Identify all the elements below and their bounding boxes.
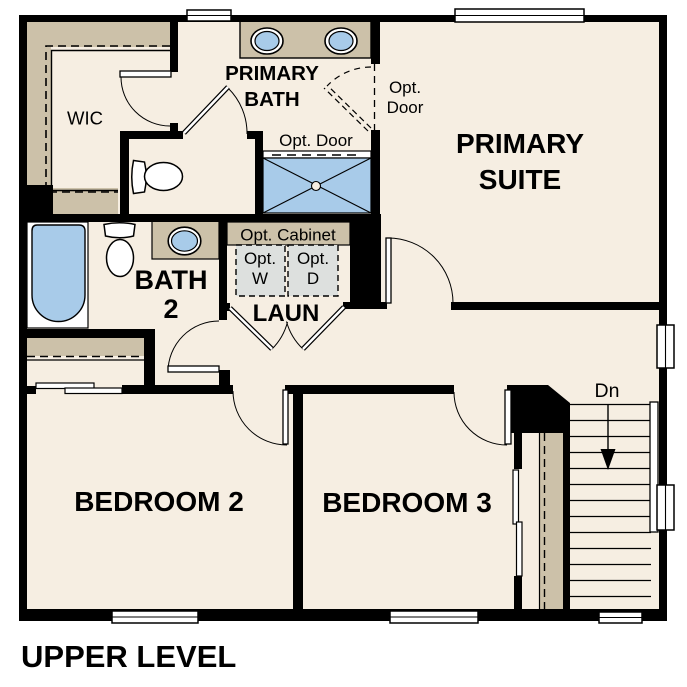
svg-text:2: 2 <box>163 294 178 324</box>
svg-text:WIC: WIC <box>67 108 103 129</box>
svg-text:BATH: BATH <box>244 88 299 111</box>
svg-text:BEDROOM 3: BEDROOM 3 <box>322 487 492 518</box>
svg-text:PRIMARY: PRIMARY <box>456 128 584 159</box>
svg-text:Dn: Dn <box>595 380 620 402</box>
svg-text:PRIMARY: PRIMARY <box>225 62 319 85</box>
svg-text:Opt. Cabinet: Opt. Cabinet <box>240 226 336 245</box>
svg-text:Opt. Door: Opt. Door <box>279 131 353 150</box>
svg-text:SUITE: SUITE <box>479 164 561 195</box>
svg-text:W: W <box>252 269 268 288</box>
svg-text:BATH: BATH <box>135 265 208 295</box>
svg-text:Opt.: Opt. <box>244 249 276 268</box>
svg-text:D: D <box>307 269 319 288</box>
svg-text:Door: Door <box>387 98 424 117</box>
svg-text:Opt.: Opt. <box>297 249 329 268</box>
svg-text:LAUN: LAUN <box>253 300 320 327</box>
svg-text:BEDROOM 2: BEDROOM 2 <box>74 486 244 517</box>
svg-text:Opt.: Opt. <box>389 78 421 97</box>
svg-text:UPPER LEVEL: UPPER LEVEL <box>21 639 236 674</box>
